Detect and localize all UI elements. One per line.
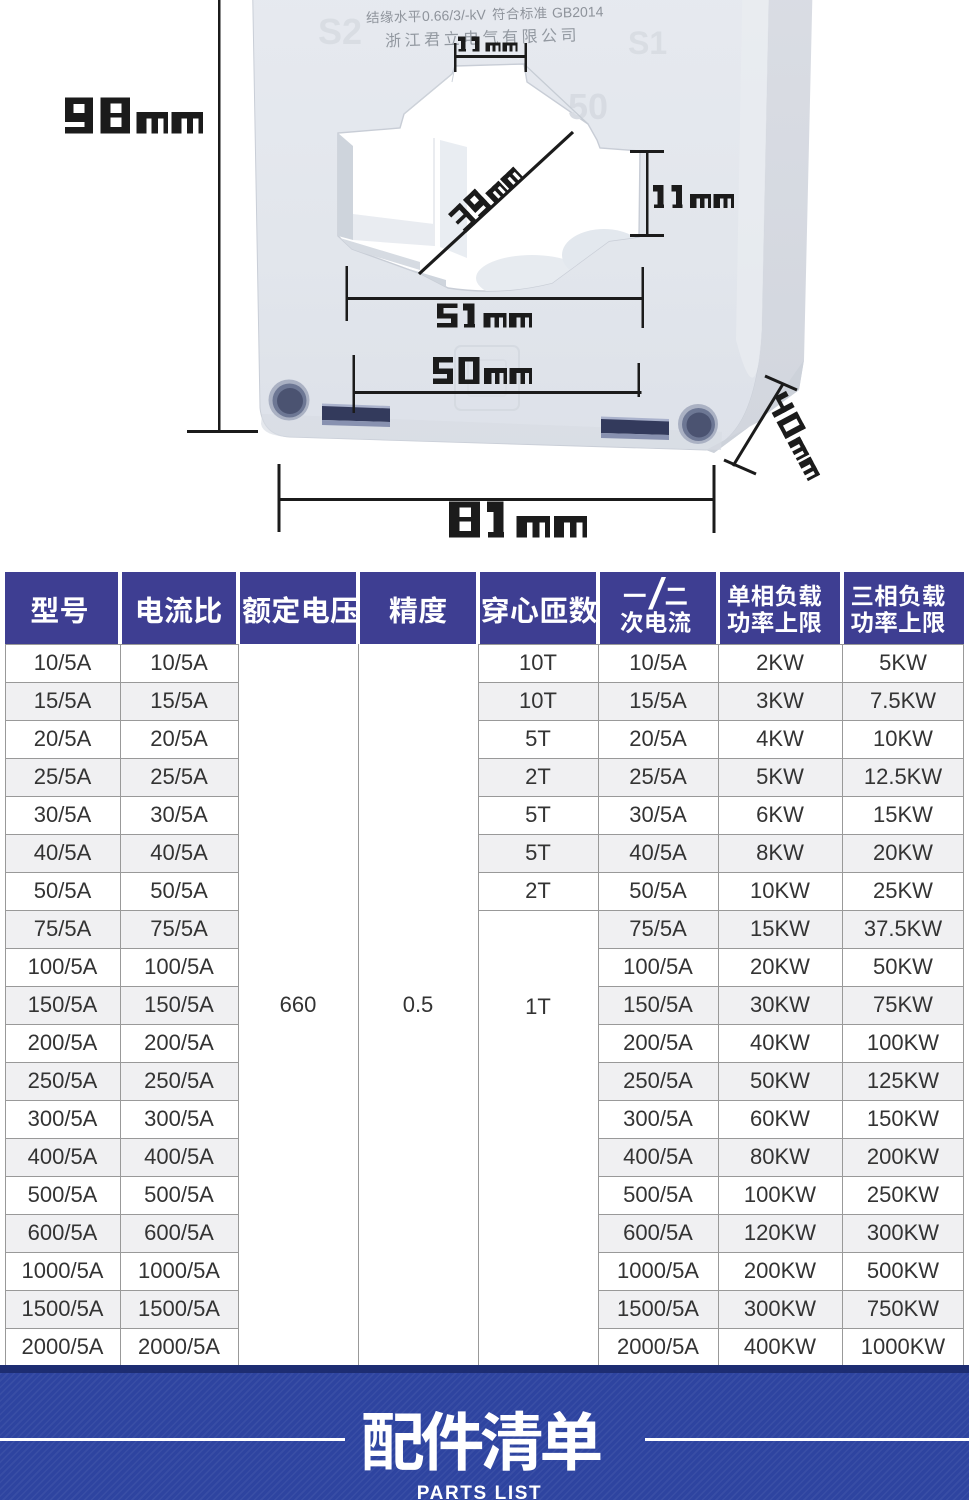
- svg-text:S1: S1: [628, 25, 667, 61]
- svg-text:GB2014: GB2014: [552, 3, 604, 20]
- svg-text:0.66/3/-kV: 0.66/3/-kV: [422, 6, 487, 24]
- svg-text:50: 50: [568, 86, 608, 127]
- svg-text:S2: S2: [318, 11, 362, 52]
